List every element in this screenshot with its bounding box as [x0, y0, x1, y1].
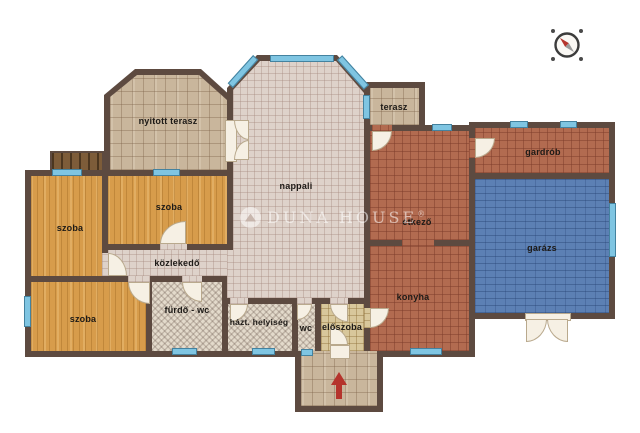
opening-kozlekedo-nappali — [227, 250, 233, 298]
label-wc: wc — [300, 323, 312, 333]
label-nappali: nappali — [280, 181, 313, 191]
window-gardrob-2 — [560, 121, 577, 128]
room-nappali — [227, 55, 370, 304]
door-garazs-leaf-right — [547, 319, 568, 342]
label-eloszoba: előszoba — [322, 322, 362, 332]
label-gardrob: gardrób — [525, 147, 560, 157]
door-garazs-leaf-left — [526, 319, 547, 342]
label-kozlekedo: közlekedő — [154, 258, 199, 268]
opening-etkezo-konyha — [402, 240, 434, 246]
label-szoba-2: szoba — [156, 202, 183, 212]
label-konyha: konyha — [397, 292, 430, 302]
label-etkezo: étkező — [402, 217, 431, 227]
label-szoba-1: szoba — [57, 223, 84, 233]
window-szoba1 — [52, 169, 82, 176]
nappali-floor — [233, 61, 364, 298]
label-terasz: terasz — [380, 102, 407, 112]
window-furdo-bottom — [172, 348, 197, 355]
window-szoba2 — [153, 169, 180, 176]
label-hazt-helyiseg: házt. helyiség — [230, 317, 289, 327]
window-bay-top — [270, 55, 334, 62]
floor-plan: nyitott terasz szoba szoba szoba nappali… — [0, 0, 640, 433]
label-furdo-wc: fürdő - wc — [165, 305, 210, 315]
window-konyha-bottom — [410, 348, 442, 355]
label-nyitott-terasz: nyitott terasz — [139, 116, 198, 126]
window-wc-bottom — [301, 349, 313, 356]
window-hazt-bottom — [252, 348, 275, 355]
compass-rose-icon — [548, 26, 586, 64]
label-garazs: garázs — [527, 243, 557, 253]
window-szoba3 — [24, 296, 31, 327]
window-garazs-right — [609, 203, 616, 257]
window-nappali-right — [363, 95, 370, 119]
door-entrance-gap — [330, 345, 350, 359]
window-gardrob-1 — [510, 121, 528, 128]
label-szoba-3: szoba — [70, 314, 97, 324]
door-szoba2-gap — [160, 244, 187, 250]
window-etkezo-top — [432, 124, 452, 131]
entrance-arrow-icon — [331, 372, 347, 399]
